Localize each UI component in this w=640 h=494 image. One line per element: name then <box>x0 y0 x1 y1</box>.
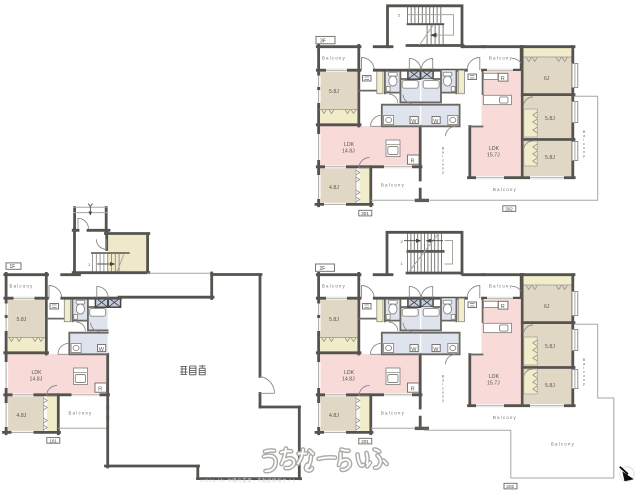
svg-text:2F: 2F <box>320 266 326 272</box>
svg-text:302: 302 <box>505 207 513 212</box>
svg-text:uchina·life 沖縄の賃貸・不動産情報サイト: uchina·life 沖縄の賃貸・不動産情報サイト <box>200 477 297 484</box>
svg-text:1: 1 <box>88 262 91 267</box>
svg-text:1: 1 <box>401 261 404 266</box>
svg-text:Balcony: Balcony <box>551 442 575 447</box>
svg-text:201: 201 <box>361 439 369 444</box>
svg-text:202: 202 <box>506 484 514 489</box>
svg-text:1F: 1F <box>10 264 16 270</box>
svg-text:2: 2 <box>398 13 401 18</box>
svg-text:301: 301 <box>361 211 369 216</box>
svg-text:3F: 3F <box>320 38 326 44</box>
svg-text:2: 2 <box>401 239 404 244</box>
svg-text:101: 101 <box>49 438 57 443</box>
